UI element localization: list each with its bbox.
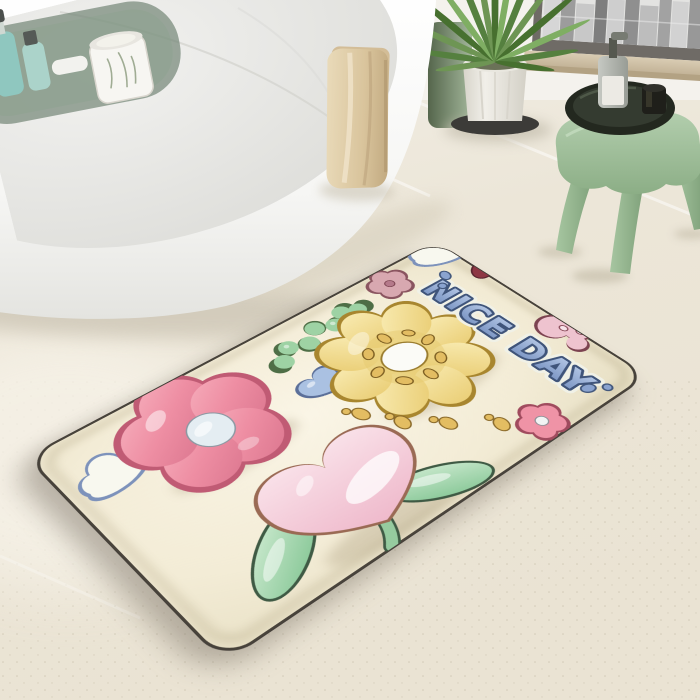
black-cup — [642, 84, 666, 114]
bathroom-scene: NICE DAY NICE DAY NICE DAY — [0, 0, 700, 700]
towel-drape — [323, 48, 392, 190]
